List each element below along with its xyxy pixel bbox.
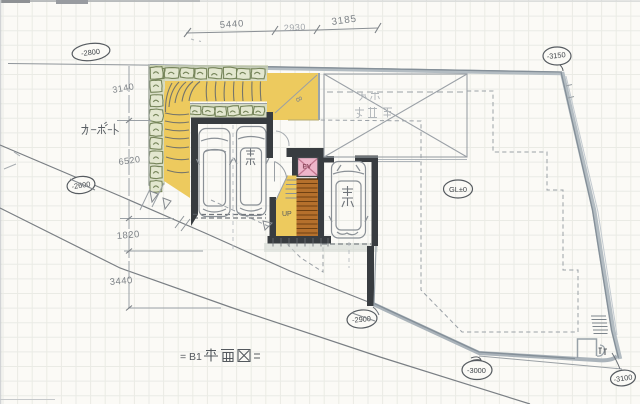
svg-text:3440: 3440: [109, 275, 133, 288]
svg-text:1820: 1820: [116, 229, 140, 242]
svg-text:UP: UP: [282, 211, 292, 218]
svg-text:5440: 5440: [219, 18, 244, 31]
svg-text:EV: EV: [303, 164, 312, 171]
svg-text:-3000: -3000: [467, 366, 486, 375]
svg-text:= B1: = B1: [180, 351, 202, 363]
svg-text:2930: 2930: [284, 22, 307, 33]
svg-text:-2900: -2900: [352, 314, 372, 325]
svg-text:GL±0: GL±0: [449, 185, 467, 194]
